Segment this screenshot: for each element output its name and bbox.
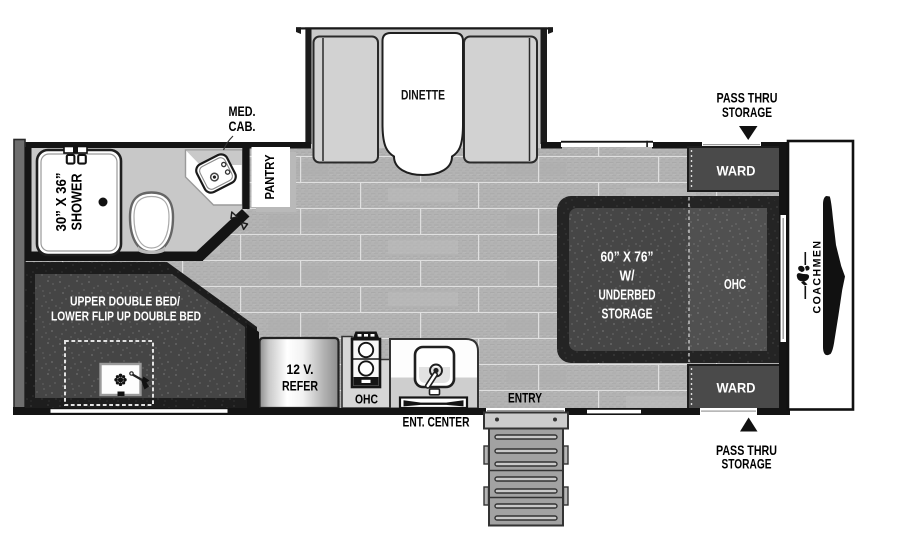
svg-text:DINETTE: DINETTE [401, 87, 445, 103]
svg-text:CAB.: CAB. [229, 118, 256, 134]
svg-text:W/: W/ [620, 269, 635, 285]
svg-text:30” X 36”: 30” X 36” [54, 173, 70, 232]
svg-text:PANTRY: PANTRY [263, 154, 277, 200]
svg-text:STORAGE: STORAGE [602, 307, 653, 323]
svg-text:COACHMEN: COACHMEN [812, 240, 824, 314]
svg-text:MED.: MED. [229, 103, 256, 119]
svg-text:WARD: WARD [717, 380, 756, 396]
svg-text:ENTRY: ENTRY [508, 390, 542, 406]
svg-text:UPPER DOUBLE BED/: UPPER DOUBLE BED/ [70, 294, 180, 309]
svg-text:SHOWER: SHOWER [70, 173, 86, 230]
svg-text:WARD: WARD [717, 163, 756, 179]
svg-text:UNDERBED: UNDERBED [599, 288, 656, 304]
svg-text:LOWER FLIP UP DOUBLE BED: LOWER FLIP UP DOUBLE BED [51, 309, 201, 324]
svg-text:12 V.: 12 V. [287, 361, 314, 377]
svg-text:OHC: OHC [355, 392, 378, 407]
svg-text:STORAGE: STORAGE [722, 456, 772, 472]
svg-text:REFER: REFER [282, 378, 318, 394]
svg-text:ENT. CENTER: ENT. CENTER [403, 414, 470, 430]
svg-text:STORAGE: STORAGE [722, 104, 772, 120]
svg-text:60” X 76”: 60” X 76” [601, 250, 654, 266]
svg-text:OHC: OHC [724, 277, 746, 293]
